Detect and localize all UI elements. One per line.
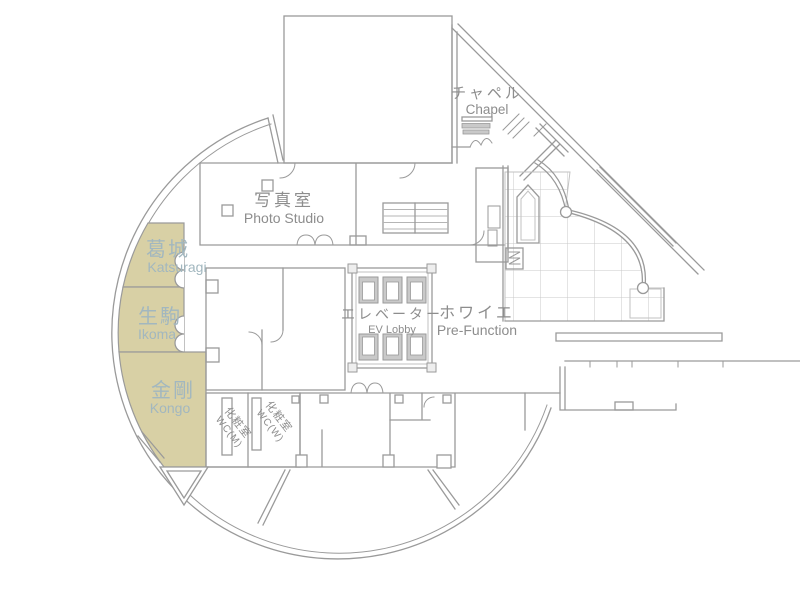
floor-plan-page: 写真室 Photo Studio チャペル Chapel 葛城 Katsurag… xyxy=(0,0,800,600)
label-kongo-en: Kongo xyxy=(150,400,191,416)
label-kongo-jp: 金剛 xyxy=(151,379,195,402)
railing-post xyxy=(638,283,649,294)
elevator-car xyxy=(359,334,426,360)
lower-rooms xyxy=(206,383,560,525)
label-chapel-en: Chapel xyxy=(466,102,509,117)
label-ev-lobby-en: EV Lobby xyxy=(368,324,416,336)
label-chapel-jp: チャペル xyxy=(451,85,523,102)
railing-post xyxy=(561,207,572,218)
elevator-car xyxy=(359,277,426,303)
label-wc-w: 化粧室 WC(W) xyxy=(253,398,298,446)
label-ev-lobby-jp: エレベーター xyxy=(341,306,443,322)
label-photo-studio-en: Photo Studio xyxy=(244,210,324,226)
label-wc-m: 化粧室 WC(M) xyxy=(212,404,257,452)
label-pre-function-en: Pre-Function xyxy=(437,322,517,338)
label-katsuragi-en: Katsuragi xyxy=(147,259,206,275)
corridors xyxy=(556,333,800,410)
label-ikoma-en: Ikoma xyxy=(138,326,176,342)
hatch-lines xyxy=(503,114,546,138)
label-pre-function-jp: ホワイエ xyxy=(439,305,515,322)
terrace xyxy=(476,160,664,321)
label-ikoma-jp: 生駒 xyxy=(138,305,182,328)
floor-plan: 写真室 Photo Studio チャペル Chapel 葛城 Katsurag… xyxy=(0,0,800,600)
central-room xyxy=(206,268,345,390)
label-photo-studio-jp: 写真室 xyxy=(254,191,314,210)
label-katsuragi-jp: 葛城 xyxy=(146,238,190,261)
stairs xyxy=(383,203,448,233)
